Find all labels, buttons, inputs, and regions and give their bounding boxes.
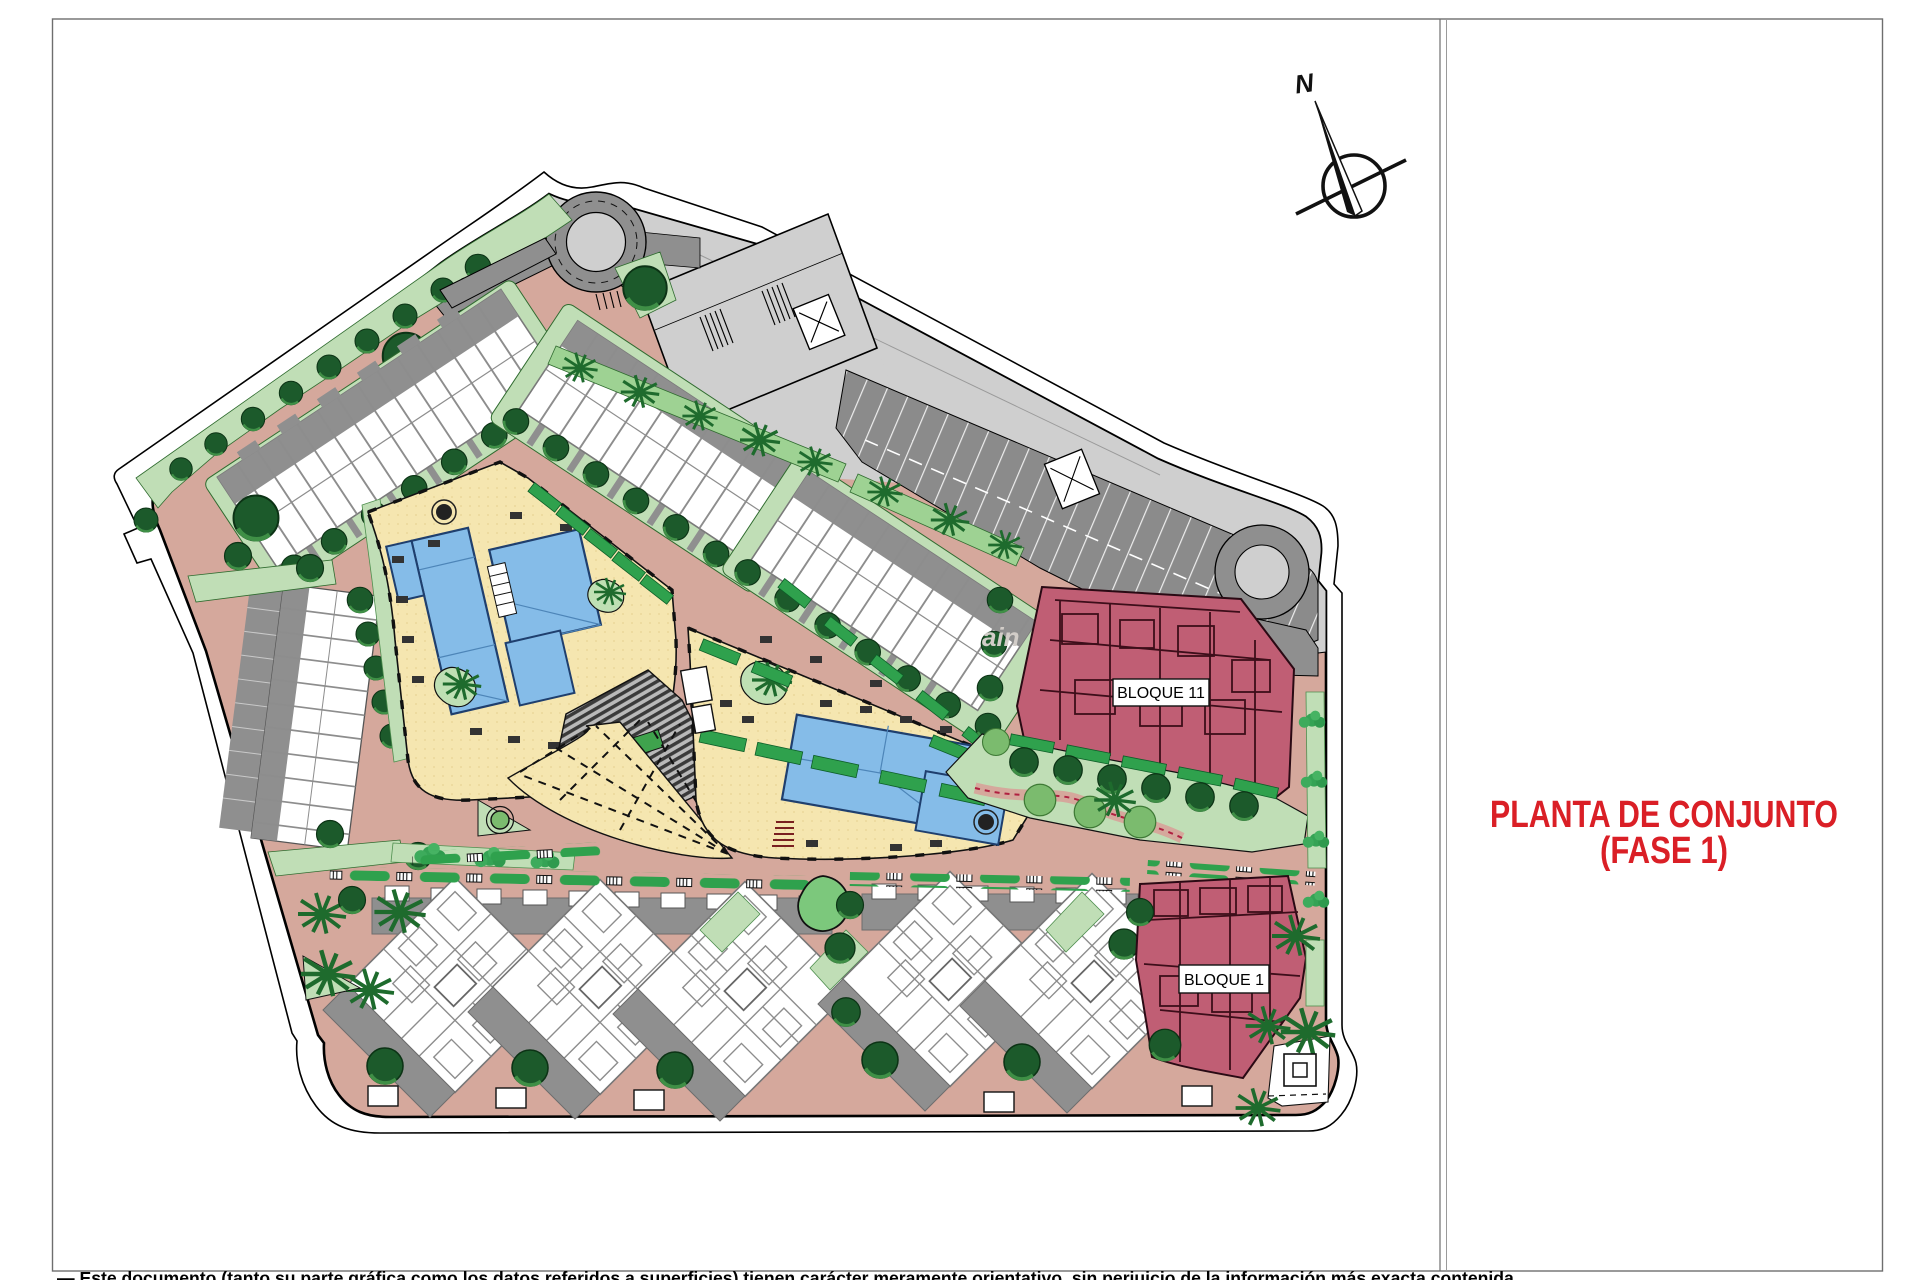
- svg-text:ain: ain: [982, 622, 1020, 652]
- svg-text:BLOQUE 11: BLOQUE 11: [1117, 685, 1205, 702]
- svg-text:(FASE 1): (FASE 1): [1600, 830, 1728, 872]
- svg-text:BLOQUE 1: BLOQUE 1: [1184, 972, 1264, 989]
- svg-text:— Este documento (tanto su pa: — Este documento (tanto su parte gráfica…: [57, 1268, 1514, 1280]
